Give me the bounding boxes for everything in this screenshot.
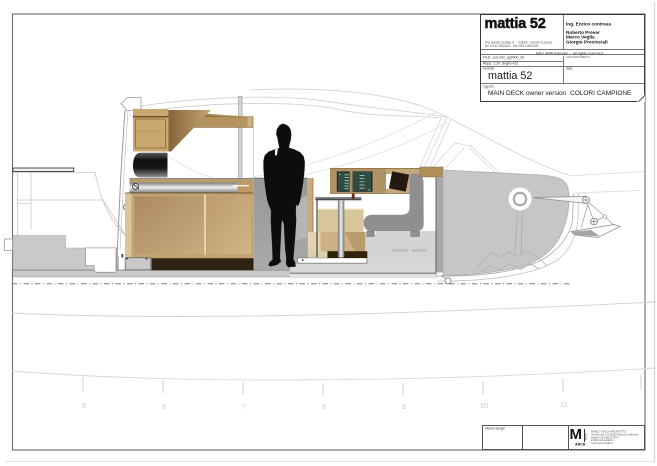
svg-text:5: 5 [82, 401, 86, 410]
svg-text:8: 8 [322, 402, 326, 411]
svg-text:10: 10 [480, 401, 488, 410]
svg-text:6: 6 [162, 402, 166, 411]
svg-text:11: 11 [560, 400, 568, 409]
svg-text:STORAGE - IMPIANTI: STORAGE - IMPIANTI [392, 248, 427, 252]
svg-text:9: 9 [402, 402, 406, 411]
svg-text:7: 7 [242, 402, 246, 411]
